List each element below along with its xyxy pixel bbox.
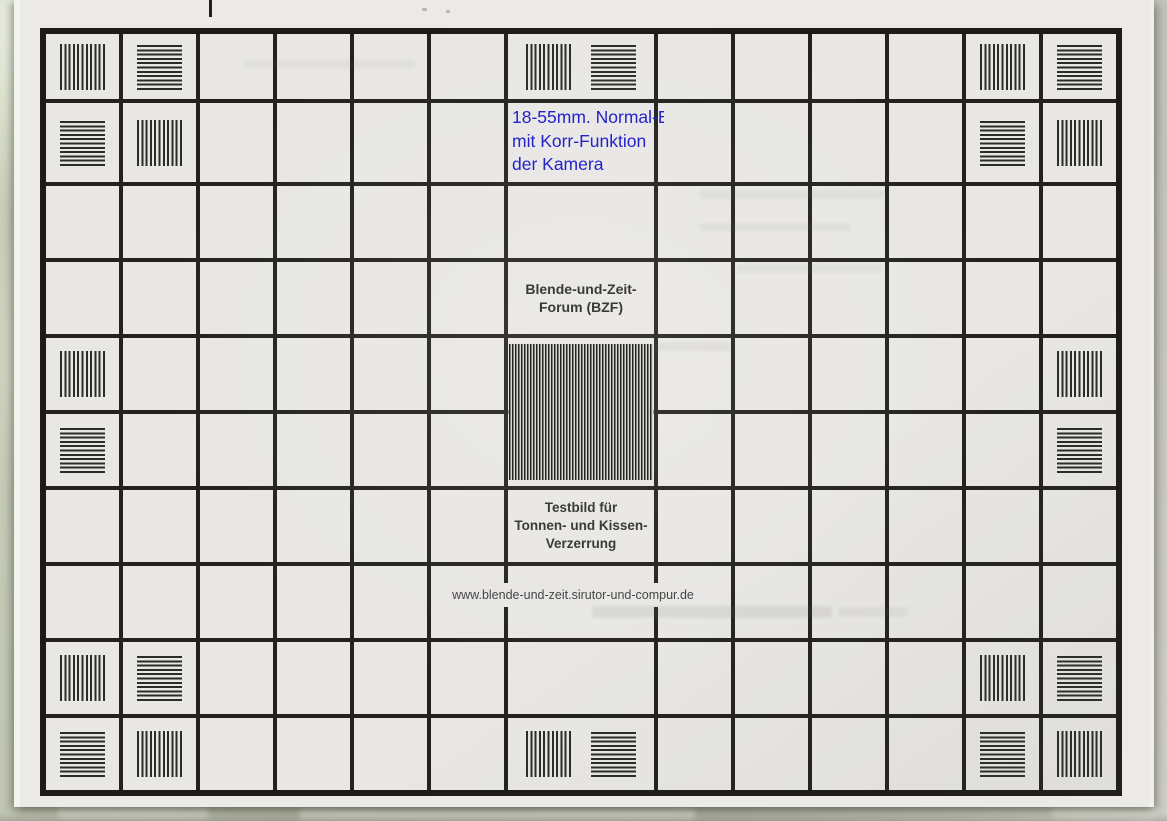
grid-cell [200,490,273,562]
grid-cell [889,103,962,182]
grid-cell [812,718,885,790]
horizontal-lines-patch [1057,655,1102,701]
grid-cell [123,566,196,638]
grid-cell [735,642,808,714]
grid-cell [1043,414,1116,486]
grid-cell [200,566,273,638]
distortion-label-line: Verzerrung [546,535,617,553]
grid-cell [354,642,427,714]
website-url-text: www.blende-und-zeit.sirutor-und-compur.d… [452,588,694,602]
table-reflection [58,806,208,819]
grid-cell [200,262,273,334]
vertical-lines-patch [137,120,182,166]
grid-cell [123,262,196,334]
grid-cell [277,186,350,258]
paper-sheet: 18-55mm. Normal-Br mit Korr-Funktion der… [14,0,1154,807]
grid-cell [889,718,962,790]
grid-cell [966,262,1039,334]
forum-title-line: Forum (BZF) [539,298,623,317]
grid-cell [200,186,273,258]
vertical-lines-patch [60,655,105,701]
grid-cell [812,103,885,182]
vertical-lines-patch [980,655,1025,701]
grid-cell [508,186,654,258]
horizontal-lines-patch [1057,427,1102,473]
horizontal-lines-patch [60,731,105,777]
grid-cell [277,414,350,486]
grid-cell [1043,718,1116,790]
photo-background: 18-55mm. Normal-Br mit Korr-Funktion der… [0,0,1167,821]
grid-cell [354,718,427,790]
vertical-lines-patch [60,351,105,397]
grid-cell [889,414,962,486]
grid-cell [123,490,196,562]
grid-cell [431,34,504,99]
grid-cell [658,414,731,486]
grid-cell [200,338,273,410]
grid-cell [200,642,273,714]
grid-cell [431,490,504,562]
horizontal-lines-patch [60,120,105,166]
grid-cell [1043,103,1116,182]
grid-cell [277,566,350,638]
grid-cell [508,642,654,714]
grid-cell [735,414,808,486]
grid-cell [889,566,962,638]
pen-mark [209,0,212,17]
grid-cell [966,490,1039,562]
horizontal-lines-patch [591,44,636,90]
vertical-lines-patch [1057,351,1102,397]
lens-annotation: 18-55mm. Normal-Br mit Korr-Funktion der… [512,106,664,177]
grid-cell [966,338,1039,410]
paper-speck [422,8,427,11]
bleed-through-smudge [737,264,882,273]
grid-cell [1043,338,1116,410]
grid-cell [431,262,504,334]
grid-cell [277,262,350,334]
bleed-through-smudge [652,342,732,351]
grid-cell [354,414,427,486]
grid-cell [658,490,731,562]
grid-cell [889,262,962,334]
grid-cell [277,718,350,790]
grid-cell [200,414,273,486]
grid-cell [46,338,119,410]
grid-cell [354,262,427,334]
grid-cell [966,103,1039,182]
grid-cell [200,103,273,182]
grid-cell [123,718,196,790]
vertical-lines-patch [980,44,1025,90]
grid-cell [658,642,731,714]
grid-cell [812,414,885,486]
grid-cell [46,642,119,714]
grid-cell [812,490,885,562]
grid-cell [354,490,427,562]
grid-cell [966,642,1039,714]
grid-cell [508,34,654,99]
grid-cell [889,186,962,258]
grid-cell [966,566,1039,638]
vertical-lines-patch [1057,120,1102,166]
table-reflection [300,808,695,820]
grid-cell [123,642,196,714]
vertical-lines-patch [526,731,571,777]
grid-cell [889,642,962,714]
horizontal-lines-patch [591,731,636,777]
grid-cell [431,186,504,258]
grid-cell [966,186,1039,258]
horizontal-lines-patch [60,427,105,473]
vertical-lines-patch [526,44,571,90]
grid-cell [966,414,1039,486]
distortion-label-line: Testbild für [545,499,618,517]
grid-cell [123,414,196,486]
grid-cell [354,186,427,258]
grid-cell [889,338,962,410]
grid-cell [46,566,119,638]
website-url: www.blende-und-zeit.sirutor-und-compur.d… [440,583,706,607]
annotation-line: 18-55mm. Normal-Br [512,106,664,130]
grid-cell [735,103,808,182]
grid-cell [735,338,808,410]
annotation-line: mit Korr-Funktion [512,130,664,154]
distortion-label-line: Tonnen- und Kissen- [514,517,647,535]
grid-cell [354,566,427,638]
grid-cell [658,262,731,334]
grid-cell [46,718,119,790]
bleed-through-smudge [838,607,908,617]
grid-cell [812,34,885,99]
grid-cell [889,490,962,562]
grid-cell [508,718,654,790]
vertical-lines-patch [137,731,182,777]
forum-title: Blende-und-Zeit- Forum (BZF) [508,262,654,334]
grid-cell [46,414,119,486]
grid-cell [735,490,808,562]
grid-cell [1043,262,1116,334]
grid-cell [123,186,196,258]
grid-cell [812,642,885,714]
horizontal-lines-patch [137,655,182,701]
grid-cell [354,103,427,182]
grid-cell [46,34,119,99]
grid-cell [277,103,350,182]
grid-cell [431,414,504,486]
grid-cell [46,490,119,562]
center-resolution-block [509,344,653,480]
grid-cell [812,566,885,638]
grid-cell [735,34,808,99]
grid-cell [46,262,119,334]
horizontal-lines-patch [980,731,1025,777]
grid-cell [658,34,731,99]
grid-cell [46,103,119,182]
forum-title-line: Blende-und-Zeit- [525,280,636,299]
grid-cell [1043,566,1116,638]
grid-cell [658,103,731,182]
grid-cell [46,186,119,258]
grid-cell [277,338,350,410]
vertical-lines-patch [60,44,105,90]
grid-cell [966,34,1039,99]
bleed-through-smudge [700,223,850,231]
grid-cell [200,718,273,790]
grid-cell [889,34,962,99]
grid-cell [1043,34,1116,99]
grid-cell [123,338,196,410]
grid-cell [1043,186,1116,258]
bleed-through-smudge [245,60,415,69]
grid-cell [431,103,504,182]
horizontal-lines-patch [980,120,1025,166]
distortion-label: Testbild für Tonnen- und Kissen- Verzerr… [508,490,654,562]
grid-cell [277,642,350,714]
grid-cell [431,718,504,790]
bleed-through-smudge [592,606,832,618]
grid-cell [735,566,808,638]
grid-cell [1043,490,1116,562]
grid-cell [123,34,196,99]
vertical-lines-patch [1057,731,1102,777]
horizontal-lines-patch [137,44,182,90]
grid-cell [277,490,350,562]
grid-cell [966,718,1039,790]
paper-speck [446,10,450,13]
grid-cell [1043,642,1116,714]
grid-cell [123,103,196,182]
grid-cell [812,338,885,410]
grid-cell [431,338,504,410]
grid-cell [431,642,504,714]
grid-cell [354,338,427,410]
grid-cell [658,718,731,790]
bleed-through-smudge [700,190,885,199]
horizontal-lines-patch [1057,44,1102,90]
annotation-line: der Kamera [512,153,664,177]
grid-cell [735,718,808,790]
